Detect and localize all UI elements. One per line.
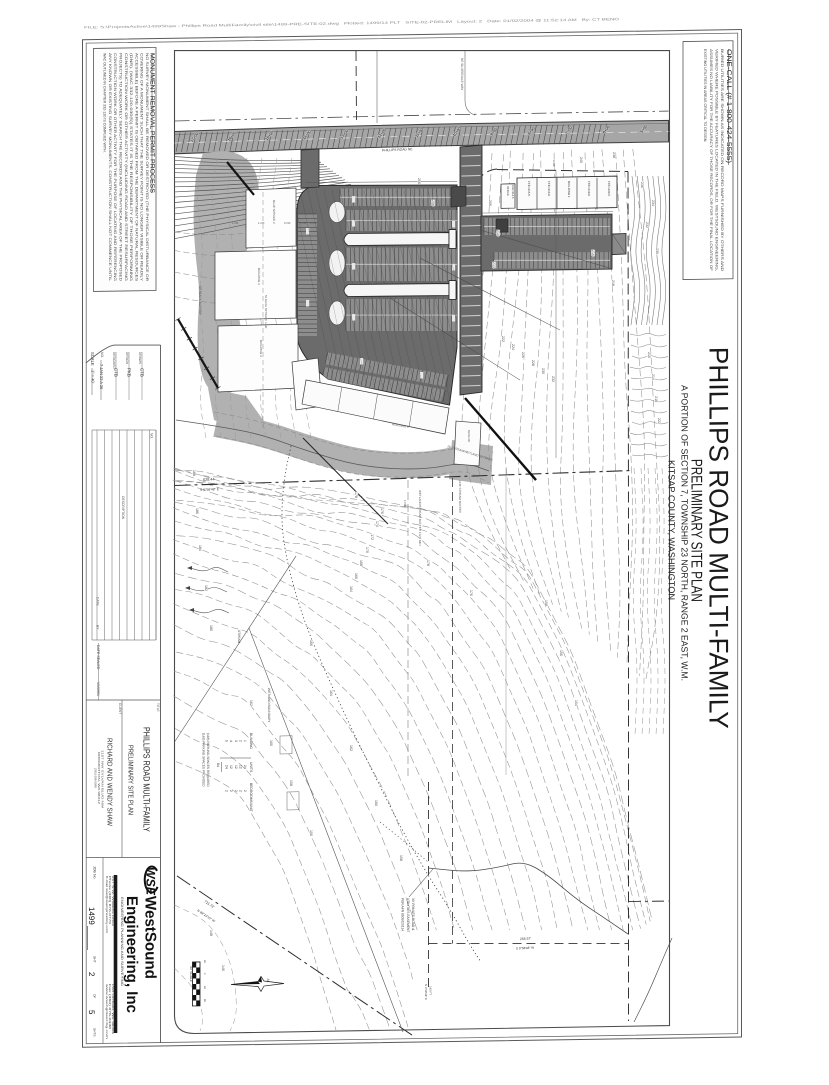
svg-text:12: 12 — [238, 765, 242, 769]
svg-text:2: 2 — [234, 790, 238, 792]
svg-text:CONSTRUCTION WORK OR OTHER ACT: CONSTRUCTION WORK OR OTHER ACTIVITY FOR … — [113, 53, 117, 281]
svg-text:1/1/2001: 1/1/2001 — [96, 682, 100, 696]
svg-text:7 JAN 22 A 26: 7 JAN 22 A 26 — [99, 364, 104, 390]
svg-text:NO.: NO. — [150, 433, 154, 439]
svg-text:162: 162 — [349, 745, 353, 751]
svg-text:VERIFIED WHERE POSSIBLE BY FEA: VERIFIED WHERE POSSIBLE BY FEATURES LOCA… — [714, 49, 718, 271]
svg-text:176: 176 — [469, 590, 473, 596]
svg-text:FFE=214.5: FFE=214.5 — [511, 185, 515, 199]
svg-text:9+50: 9+50 — [300, 221, 307, 225]
svg-text:WETLAND BOUNDARY: WETLAND BOUNDARY — [267, 688, 271, 723]
svg-text:ANY KNOWN OR EXISTING SURVEY: ANY KNOWN OR EXISTING SURVEY MONUMENTS. … — [108, 53, 112, 281]
svg-text:230: 230 — [541, 368, 545, 374]
svg-text:222: 222 — [657, 418, 661, 424]
svg-text:TITLE: TITLE — [156, 703, 160, 712]
svg-text:FFE=215.5: FFE=215.5 — [527, 181, 531, 196]
svg-text:(168) PARKING SPACES PROVIDED: (168) PARKING SPACES PROVIDED — [202, 733, 206, 787]
svg-text:BLDG 5B: BLDG 5B — [467, 430, 471, 442]
svg-text:232: 232 — [645, 222, 649, 228]
svg-text:BURIED UTILITIES ARE SHOWN AS: BURIED UTILITIES ARE SHOWN AS INDICATED … — [720, 49, 724, 271]
svg-text:DESIGN: DESIGN — [125, 352, 129, 365]
svg-text:E-mail wse@wsengineering.com: E-mail wse@wsengineering.com — [105, 876, 109, 934]
svg-text:N 0°58'48" E: N 0°58'48" E — [424, 984, 428, 1000]
svg-text:162: 162 — [249, 700, 253, 706]
svg-text:628.44: 628.44 — [203, 477, 215, 482]
svg-text:0+00: 0+00 — [552, 160, 556, 167]
svg-text:156: 156 — [309, 830, 313, 836]
svg-text:2: 2 — [229, 790, 233, 792]
svg-text:182: 182 — [204, 585, 208, 591]
svg-text:226: 226 — [521, 352, 525, 358]
svg-text:1+50: 1+50 — [403, 500, 407, 507]
svg-text:146: 146 — [221, 965, 225, 971]
svg-text:24: 24 — [225, 765, 229, 769]
svg-text:DATE SEALED: DATE SEALED — [96, 645, 100, 670]
svg-text:5: 5 — [87, 1010, 96, 1015]
svg-text:LINE STREAM BUFFER: LINE STREAM BUFFER — [458, 480, 462, 514]
svg-text:206: 206 — [417, 178, 421, 184]
svg-text:234: 234 — [651, 200, 655, 206]
svg-text:208: 208 — [431, 200, 435, 206]
svg-text:ASSUMES NO LIABILITY FOR THE A: ASSUMES NO LIABILITY FOR THE ACCURACY OF… — [709, 49, 713, 272]
svg-text:BY: BY — [96, 625, 100, 630]
svg-text:0+00: 0+00 — [310, 221, 317, 225]
svg-text:UNITS: UNITS — [249, 762, 253, 773]
svg-text:-N-: -N- — [266, 978, 270, 983]
svg-text:BUILDING 3: BUILDING 3 — [257, 268, 261, 285]
svg-text:Engineering, Inc: Engineering, Inc — [123, 896, 140, 1014]
svg-text:172: 172 — [370, 534, 374, 540]
svg-text:NE SILVERDALE WAY: NE SILVERDALE WAY — [460, 58, 464, 91]
svg-text:PRELIMINARY SITE PLAN: PRELIMINARY SITE PLAN — [127, 745, 134, 815]
svg-text:240: 240 — [579, 157, 583, 163]
svg-text:BUILDING 1: BUILDING 1 — [567, 181, 571, 198]
svg-text:236: 236 — [640, 182, 644, 188]
svg-text:148: 148 — [209, 930, 213, 936]
svg-text:84: 84 — [216, 763, 220, 767]
svg-text:KITSAP COUNTY, WASHINGTON: KITSAP COUNTY, WASHINGTON — [667, 460, 677, 600]
svg-text:218: 218 — [611, 280, 615, 286]
svg-text:WestSound: WestSound — [142, 896, 159, 979]
svg-text:214: 214 — [651, 374, 655, 380]
svg-text:PHILLIPS ROAD MULTI-FAMILY: PHILLIPS ROAD MULTI-FAMILY — [704, 347, 734, 729]
svg-text:DATE: DATE — [96, 597, 100, 607]
svg-text:3: 3 — [234, 740, 238, 742]
svg-text:164: 164 — [329, 690, 333, 696]
svg-text:1+00: 1+00 — [258, 221, 265, 225]
svg-text:166: 166 — [354, 573, 358, 579]
svg-text:WAC OUTLINED IN CHAPTER 332-12: WAC OUTLINED IN CHAPTER 332-120 IS COMPL… — [103, 53, 107, 153]
svg-text:EXISTING UTILITIES IN AREAS CR: EXISTING UTILITIES IN AREAS CRITICAL TO … — [703, 49, 707, 142]
svg-text:SCALE: SCALE — [90, 352, 95, 366]
svg-text:12: 12 — [229, 765, 233, 769]
svg-text:1+50: 1+50 — [232, 221, 239, 225]
svg-text:154: 154 — [574, 700, 578, 706]
svg-text:BLUE SPRUCE 2: BLUE SPRUCE 2 — [272, 200, 276, 224]
svg-text:1: 1 — [243, 740, 247, 742]
svg-text:40' SCALE: 40' SCALE — [189, 966, 193, 983]
svg-text:PROJECTS) TO ADEQUATELY SEARC: PROJECTS) TO ADEQUATELY SEARCH THE RECOR… — [119, 53, 123, 282]
svg-text:2: 2 — [87, 972, 96, 977]
svg-text:210: 210 — [496, 230, 500, 236]
svg-text:2: 2 — [238, 740, 242, 742]
svg-text:170: 170 — [365, 547, 369, 553]
svg-text:DESIGNED: DESIGNED — [112, 352, 116, 369]
svg-text:BUILDING 4: BUILDING 4 — [259, 340, 263, 357]
svg-text:230: 230 — [655, 248, 659, 254]
svg-text:FFE=219.0: FFE=219.0 — [587, 181, 591, 196]
svg-text:30' PRIVATE ROAD &: 30' PRIVATE ROAD & — [411, 898, 415, 931]
svg-text:222: 222 — [501, 336, 505, 342]
svg-text:2: 2 — [243, 790, 247, 792]
svg-text:0+50: 0+50 — [284, 221, 291, 225]
svg-text:CONSTRUCTION WORK OR OTHER ACT: CONSTRUCTION WORK OR OTHER ACTIVITY (INC… — [124, 53, 128, 281]
svg-text:206: 206 — [488, 200, 492, 206]
svg-text:1499: 1499 — [87, 907, 96, 925]
svg-text:4: 4 — [229, 740, 233, 742]
svg-text:176: 176 — [380, 508, 384, 514]
svg-text:DESCRIPTION: DESCRIPTION — [121, 496, 125, 520]
svg-text:158: 158 — [289, 780, 293, 786]
svg-text:160: 160 — [374, 800, 378, 806]
svg-text:174: 174 — [375, 521, 379, 527]
svg-text:232: 232 — [551, 376, 555, 382]
svg-text:180: 180 — [209, 625, 213, 631]
svg-text:OFFICE: OFFICE — [506, 186, 510, 196]
svg-text:FFE=220.5: FFE=220.5 — [607, 181, 611, 196]
svg-text:178: 178 — [354, 492, 358, 498]
svg-text:224: 224 — [511, 344, 515, 350]
svg-text:166: 166 — [309, 640, 313, 646]
svg-text:JOB No.: JOB No. — [93, 866, 97, 880]
svg-text:210: 210 — [647, 352, 651, 358]
svg-text:RICHARD AND WENDY SHAW: RICHARD AND WENDY SHAW — [106, 738, 113, 826]
svg-text:164: 164 — [349, 586, 353, 592]
svg-text:NO.: NO. — [100, 352, 104, 358]
svg-text:186: 186 — [195, 508, 199, 514]
svg-text:WETLAND/STREAM BUFFER 172.5 M: WETLAND/STREAM BUFFER 172.5 MIN — [418, 490, 422, 546]
svg-text:SHTS: SHTS — [93, 1028, 97, 1037]
svg-text:158: 158 — [544, 600, 548, 606]
svg-text:NO SURVEY MONUMENT SHALL BE RE: NO SURVEY MONUMENT SHALL BE REMOVED OR D… — [145, 53, 149, 282]
svg-text:SETBACK BUFFER: SETBACK BUFFER — [198, 286, 202, 315]
svg-text:(DNR). (WAC 332-120-030(5)) ST: (DNR). (WAC 332-120-030(5)) STATES IT IS… — [129, 53, 133, 281]
svg-text:FFE=216.0: FFE=216.0 — [547, 181, 551, 196]
svg-text:SHT: SHT — [93, 956, 97, 963]
svg-text:BEDROOMS/UNIT: BEDROOMS/UNIT — [249, 783, 253, 812]
svg-text:188: 188 — [192, 470, 196, 476]
svg-text:160: 160 — [269, 740, 273, 746]
svg-text:168: 168 — [359, 560, 363, 566]
svg-text:218: 218 — [654, 396, 658, 402]
svg-text:DRAWN: DRAWN — [138, 352, 142, 365]
svg-text:2: 2 — [225, 790, 229, 792]
svg-text:50 BLDG SETBACK LINE: 50 BLDG SETBACK LINE — [264, 295, 268, 329]
svg-text:A PORTION OF SECTION 7, TOWNSH: A PORTION OF SECTION 7, TOWNSHIP 23 NORT… — [680, 385, 690, 681]
svg-text:ENGINEERING PLANNING AND SU: ENGINEERING PLANNING AND SURVEYING — [120, 897, 124, 987]
svg-text:184: 184 — [198, 545, 202, 551]
svg-text:CLIENT: CLIENT — [118, 703, 122, 714]
svg-text:143 FT: 143 FT — [429, 986, 433, 995]
svg-text:256.57': 256.57' — [520, 937, 531, 942]
svg-text:www.wsengineering.com: www.wsengineering.com — [105, 984, 109, 1040]
svg-text:PER AFN 8505020114: PER AFN 8505020114 — [401, 898, 405, 931]
svg-text:PHILLIPS ROAD MULTI-FAMILY: PHILLIPS ROAD MULTI-FAMILY — [142, 727, 152, 832]
svg-text:214: 214 — [492, 262, 496, 268]
svg-text:(360) 698-0999: (360) 698-0999 — [94, 768, 98, 788]
svg-text:5: 5 — [225, 740, 229, 742]
svg-text:216: 216 — [591, 250, 595, 256]
svg-text:156: 156 — [559, 650, 563, 656]
svg-text:24: 24 — [243, 765, 247, 769]
svg-text:2: 2 — [238, 790, 242, 792]
svg-text:228: 228 — [531, 360, 535, 366]
svg-text:158: 158 — [399, 855, 403, 861]
svg-text:1” = 40’: 1” = 40’ — [91, 370, 96, 384]
svg-text:OF: OF — [93, 994, 97, 999]
svg-text:UTILITIES EASEMENT: UTILITIES EASEMENT — [406, 898, 410, 933]
svg-text:178: 178 — [426, 560, 430, 566]
svg-text:(168) PARKING SPACES REQUIRED: (168) PARKING SPACES REQUIRED — [206, 733, 210, 787]
svg-text:COVERING OF A MONUMENT SUCH T: COVERING OF A MONUMENT SUCH THAT THE SUR… — [140, 53, 144, 282]
svg-text:12: 12 — [234, 765, 238, 769]
svg-text:BUILDING: BUILDING — [249, 733, 253, 749]
svg-text:238: 238 — [612, 152, 616, 158]
svg-text:ACCESSIBLE) BEFORE A PERMIT IS: ACCESSIBLE) BEFORE A PERMIT IS OBTAINED … — [134, 53, 138, 282]
